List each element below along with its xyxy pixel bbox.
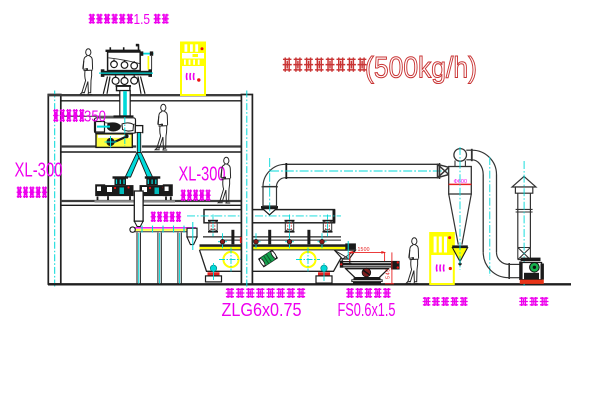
svg-text:545: 545 xyxy=(386,269,392,279)
svg-text:1500: 1500 xyxy=(358,247,370,253)
svg-text:XL-300: XL-300 xyxy=(179,163,226,186)
svg-text:350: 350 xyxy=(84,109,106,126)
svg-text:XL-300: XL-300 xyxy=(15,159,63,182)
svg-text:FS0.6x1.5: FS0.6x1.5 xyxy=(338,299,396,320)
svg-text:ZLG6x0.75: ZLG6x0.75 xyxy=(222,299,302,320)
svg-text:1.5: 1.5 xyxy=(134,11,151,28)
svg-text:(500kg/h): (500kg/h) xyxy=(365,52,477,85)
